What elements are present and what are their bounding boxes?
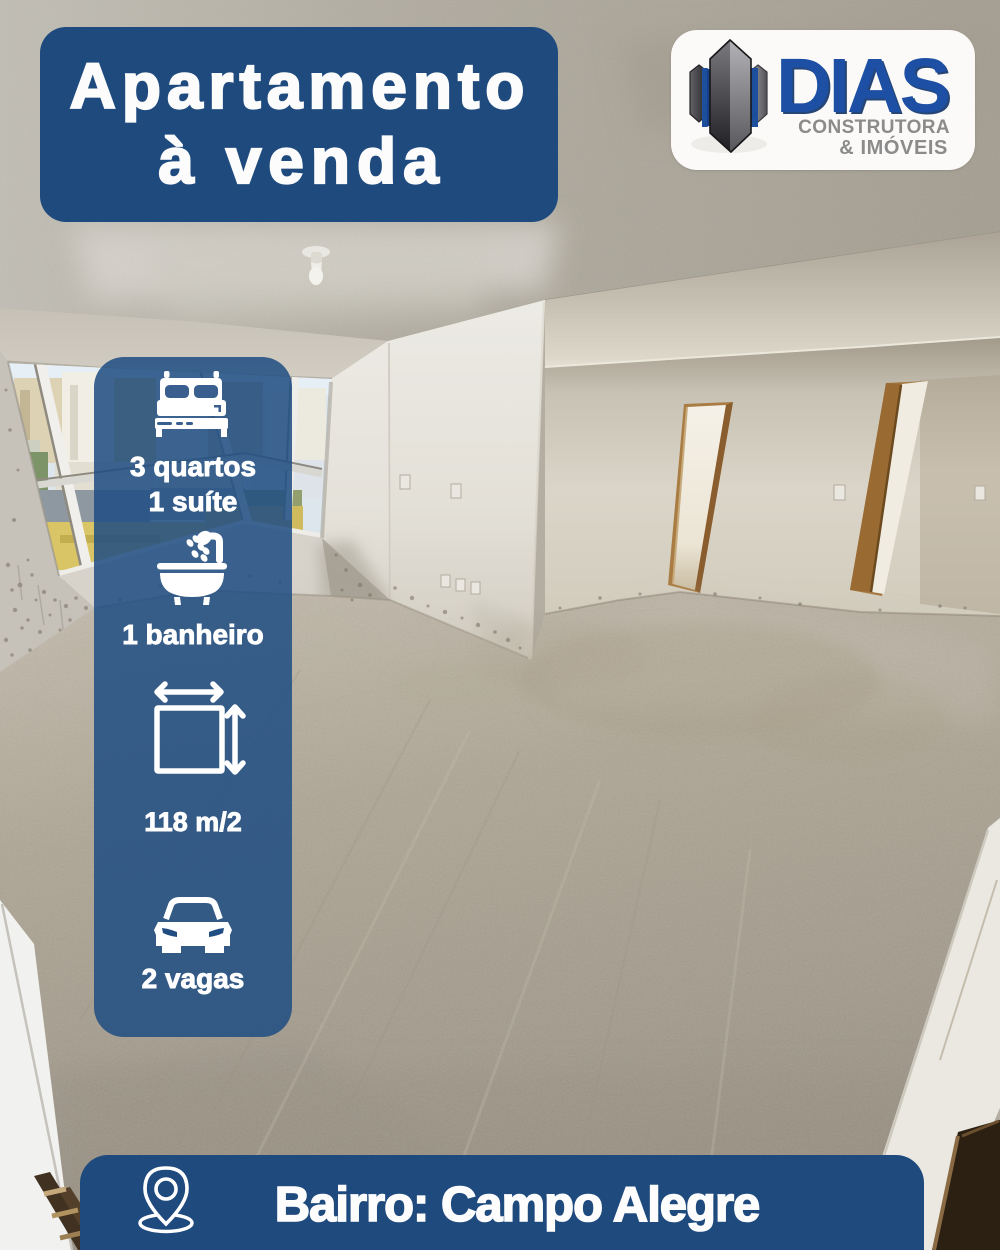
svg-text:3 quartos: 3 quartos (130, 451, 256, 482)
svg-text:& IMÓVEIS: & IMÓVEIS (839, 135, 948, 159)
svg-text:à venda: à venda (158, 125, 445, 197)
svg-text:1 suíte: 1 suíte (149, 486, 238, 517)
svg-text:118 m/2: 118 m/2 (144, 807, 242, 837)
svg-text:Bairro: Campo Alegre: Bairro: Campo Alegre (275, 1178, 760, 1232)
svg-text:CONSTRUTORA: CONSTRUTORA (798, 117, 950, 138)
svg-text:Apartamento: Apartamento (70, 50, 531, 122)
svg-text:1 banheiro: 1 banheiro (122, 619, 264, 650)
svg-text:2 vagas: 2 vagas (142, 963, 245, 994)
